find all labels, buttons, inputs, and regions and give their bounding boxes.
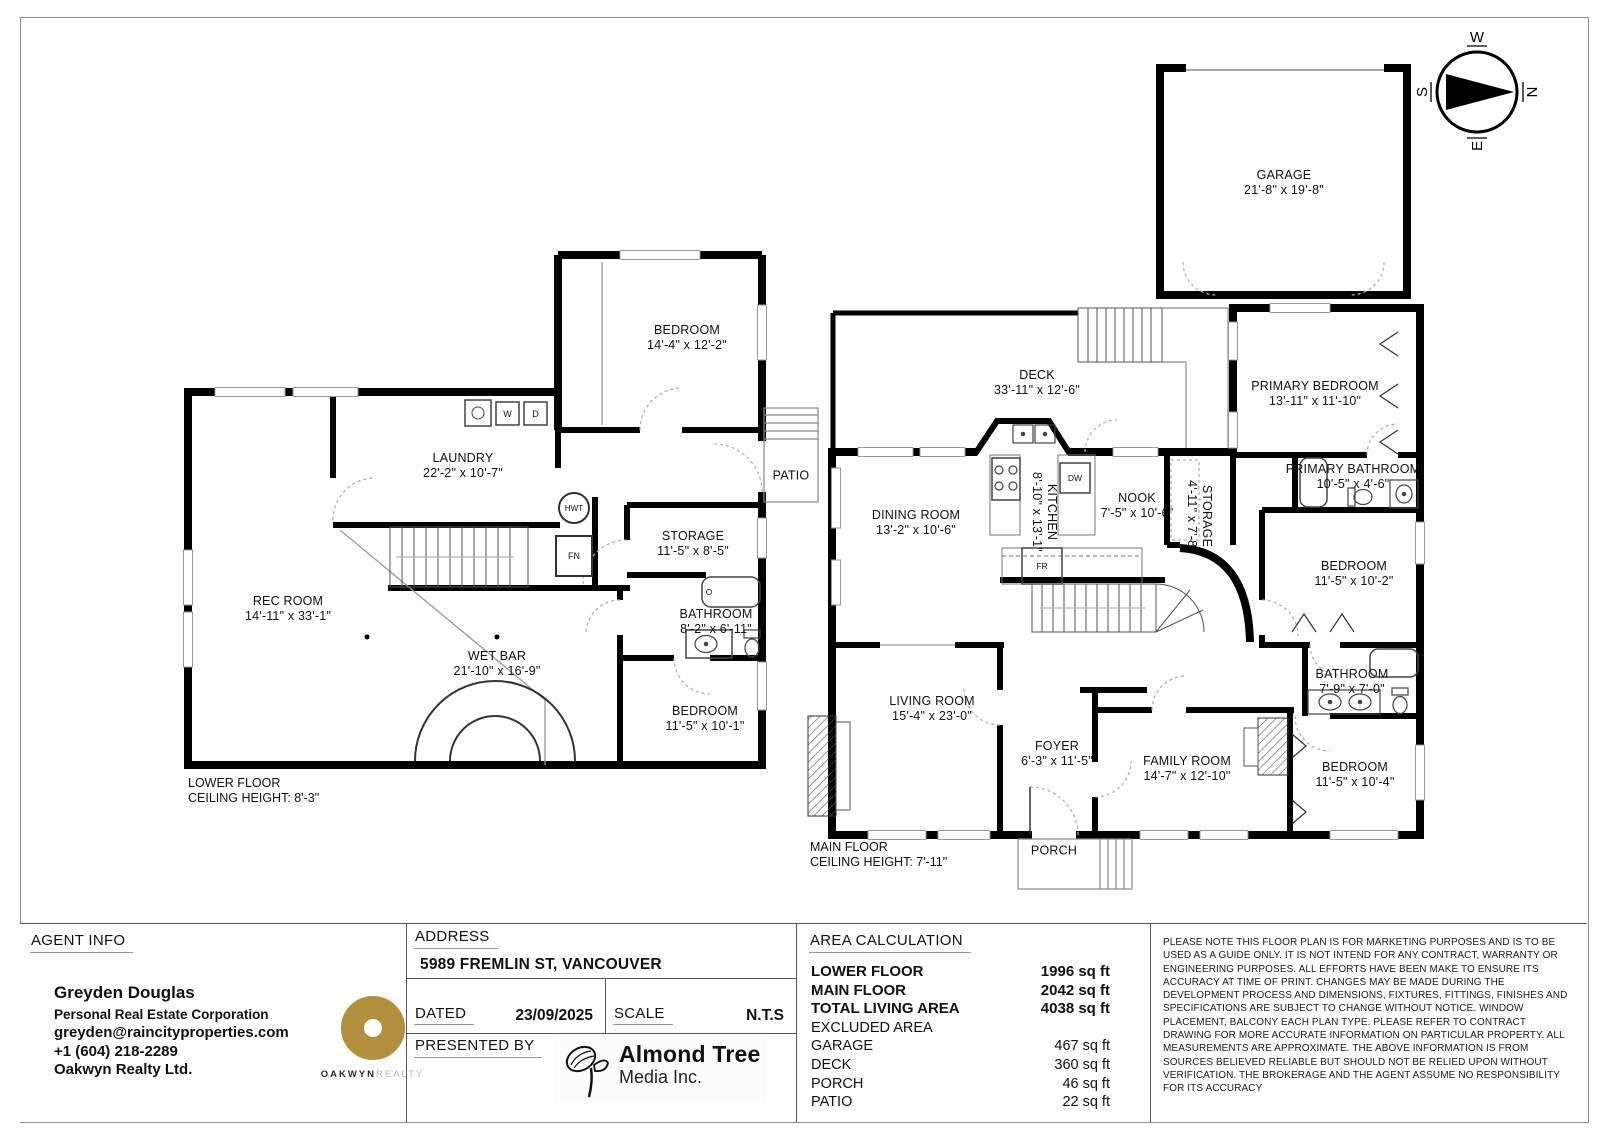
- media-company-sub: Media Inc.: [619, 1067, 761, 1088]
- washer-icon: W: [503, 409, 512, 419]
- svg-text:HWT: HWT: [565, 504, 583, 513]
- room-label-foyer: FOYER6'-3" x 11'-5": [1021, 739, 1093, 769]
- main-floor-caption: MAIN FLOORCEILING HEIGHT: 7'-11": [810, 840, 947, 870]
- area-calculation-heading: AREA CALCULATION: [809, 932, 971, 953]
- patio-steps: [764, 408, 818, 502]
- scale-label: SCALE: [613, 1005, 673, 1025]
- dated-label: DATED: [414, 1005, 474, 1025]
- room-label-bathroom-lower: BATHROOM8'-2" x 6'-11": [680, 607, 753, 637]
- area-row: LOWER FLOOR1996 sq ft: [811, 963, 1110, 982]
- address-section: ADDRESS 5989 FREMLIN ST, VANCOUVER DATED…: [406, 924, 796, 1122]
- area-calculation-section: AREA CALCULATION LOWER FLOOR1996 sq ft M…: [796, 924, 1150, 1122]
- room-label-storage-main: STORAGE4'-11" x 7'-8": [1184, 480, 1214, 552]
- room-label-wet-bar: WET BAR21'-10" x 16'-9": [453, 649, 540, 679]
- media-company-name: Almond Tree: [619, 1041, 761, 1067]
- compass-rose: W N S E: [1414, 29, 1540, 151]
- disclaimer-section: PLEASE NOTE THIS FLOOR PLAN IS FOR MARKE…: [1150, 924, 1587, 1122]
- area-row: TOTAL LIVING AREA4038 sq ft: [811, 1000, 1110, 1019]
- room-label-bathroom-main: BATHROOM7'-9" x 7'-0": [1316, 667, 1389, 697]
- almond-seed-icon: [561, 1041, 613, 1101]
- staircase-lower: [390, 527, 528, 587]
- room-label-rec-room: REC ROOM14'-11" x 33'-1": [245, 594, 331, 624]
- area-row: EXCLUDED AREA: [811, 1019, 1110, 1038]
- floor-plan-sheet: W D HWT FN: [0, 0, 1600, 1131]
- room-label-laundry: LAUNDRY22'-2" x 10'-7": [423, 451, 503, 481]
- compass-e: E: [1469, 141, 1486, 151]
- room-label-kitchen: KITCHEN8'-10" x 13'-1": [1029, 472, 1059, 552]
- presented-by-label: PRESENTED BY: [414, 1037, 542, 1058]
- area-row: PATIO22 sq ft: [811, 1093, 1110, 1112]
- room-label-living-room: LIVING ROOM15'-4" x 23'-0": [889, 694, 975, 724]
- agent-info-section: AGENT INFO Greyden Douglas Personal Real…: [20, 924, 406, 1122]
- scale-field: SCALE N.T.S: [606, 979, 796, 1033]
- staircase-main: [1032, 584, 1204, 632]
- deck-stairs: [1078, 308, 1162, 362]
- oakwyn-donut-icon: [341, 996, 405, 1060]
- compass-w: W: [1470, 29, 1485, 46]
- disclaimer-text: PLEASE NOTE THIS FLOOR PLAN IS FOR MARKE…: [1163, 936, 1575, 1096]
- room-label-bedroom-top: BEDROOM14'-4" x 12'-2": [647, 323, 727, 353]
- compass-n: N: [1523, 87, 1540, 98]
- room-label-deck: DECK33'-11" x 12'-6": [994, 368, 1080, 398]
- room-label-garage: GARAGE21'-8" x 19'-8": [1244, 168, 1324, 198]
- room-label-bedroom-right: BEDROOM11'-5" x 10'-1": [666, 704, 745, 734]
- presented-by-section: PRESENTED BY Almond Tree Media Inc.: [407, 1033, 796, 1122]
- room-label-family-room: FAMILY ROOM14'-7" x 12'-10": [1143, 754, 1231, 784]
- address-heading: ADDRESS: [414, 928, 498, 949]
- area-row: PORCH46 sq ft: [811, 1075, 1110, 1094]
- svg-text:FN: FN: [568, 551, 580, 561]
- room-label-patio: PATIO: [773, 469, 810, 484]
- room-label-primary-bedroom: PRIMARY BEDROOM13'-11" x 11'-10": [1251, 379, 1379, 409]
- room-label-porch: PORCH: [1031, 844, 1077, 859]
- fridge-icon: FR: [1036, 561, 1047, 571]
- room-label-bedroom-mid: BEDROOM11'-5" x 10'-2": [1315, 559, 1394, 589]
- dryer-icon: D: [532, 409, 539, 419]
- compass-s: S: [1414, 87, 1431, 97]
- room-label-nook: NOOK7'-5" x 10'-6": [1101, 491, 1174, 521]
- lower-floor-caption: LOWER FLOORCEILING HEIGHT: 8'-3": [188, 776, 319, 806]
- agent-info-heading: AGENT INFO: [30, 932, 133, 953]
- area-row: GARAGE467 sq ft: [811, 1037, 1110, 1056]
- dishwasher-icon: DW: [1068, 473, 1082, 483]
- scale-value: N.T.S: [746, 1007, 784, 1025]
- room-label-storage-lower: STORAGE11'-5" x 8'-5": [657, 529, 729, 559]
- wet-bar-counter: [415, 681, 575, 761]
- room-label-bedroom-bottom: BEDROOM11'-5" x 10'-4": [1316, 760, 1395, 790]
- dated-field: DATED 23/09/2025: [407, 979, 606, 1033]
- area-row: MAIN FLOOR2042 sq ft: [811, 982, 1110, 1001]
- area-row: DECK360 sq ft: [811, 1056, 1110, 1075]
- dated-value: 23/09/2025: [515, 1007, 593, 1025]
- room-label-primary-bathroom: PRIMARY BATHROOM10'-5" x 4'-6": [1286, 462, 1420, 492]
- almond-tree-logo: Almond Tree Media Inc.: [555, 1039, 767, 1103]
- title-block: AGENT INFO Greyden Douglas Personal Real…: [20, 923, 1587, 1122]
- address-value: 5989 FREMLIN ST, VANCOUVER: [420, 956, 796, 974]
- room-label-dining-room: DINING ROOM13'-2" x 10'-6": [872, 508, 960, 538]
